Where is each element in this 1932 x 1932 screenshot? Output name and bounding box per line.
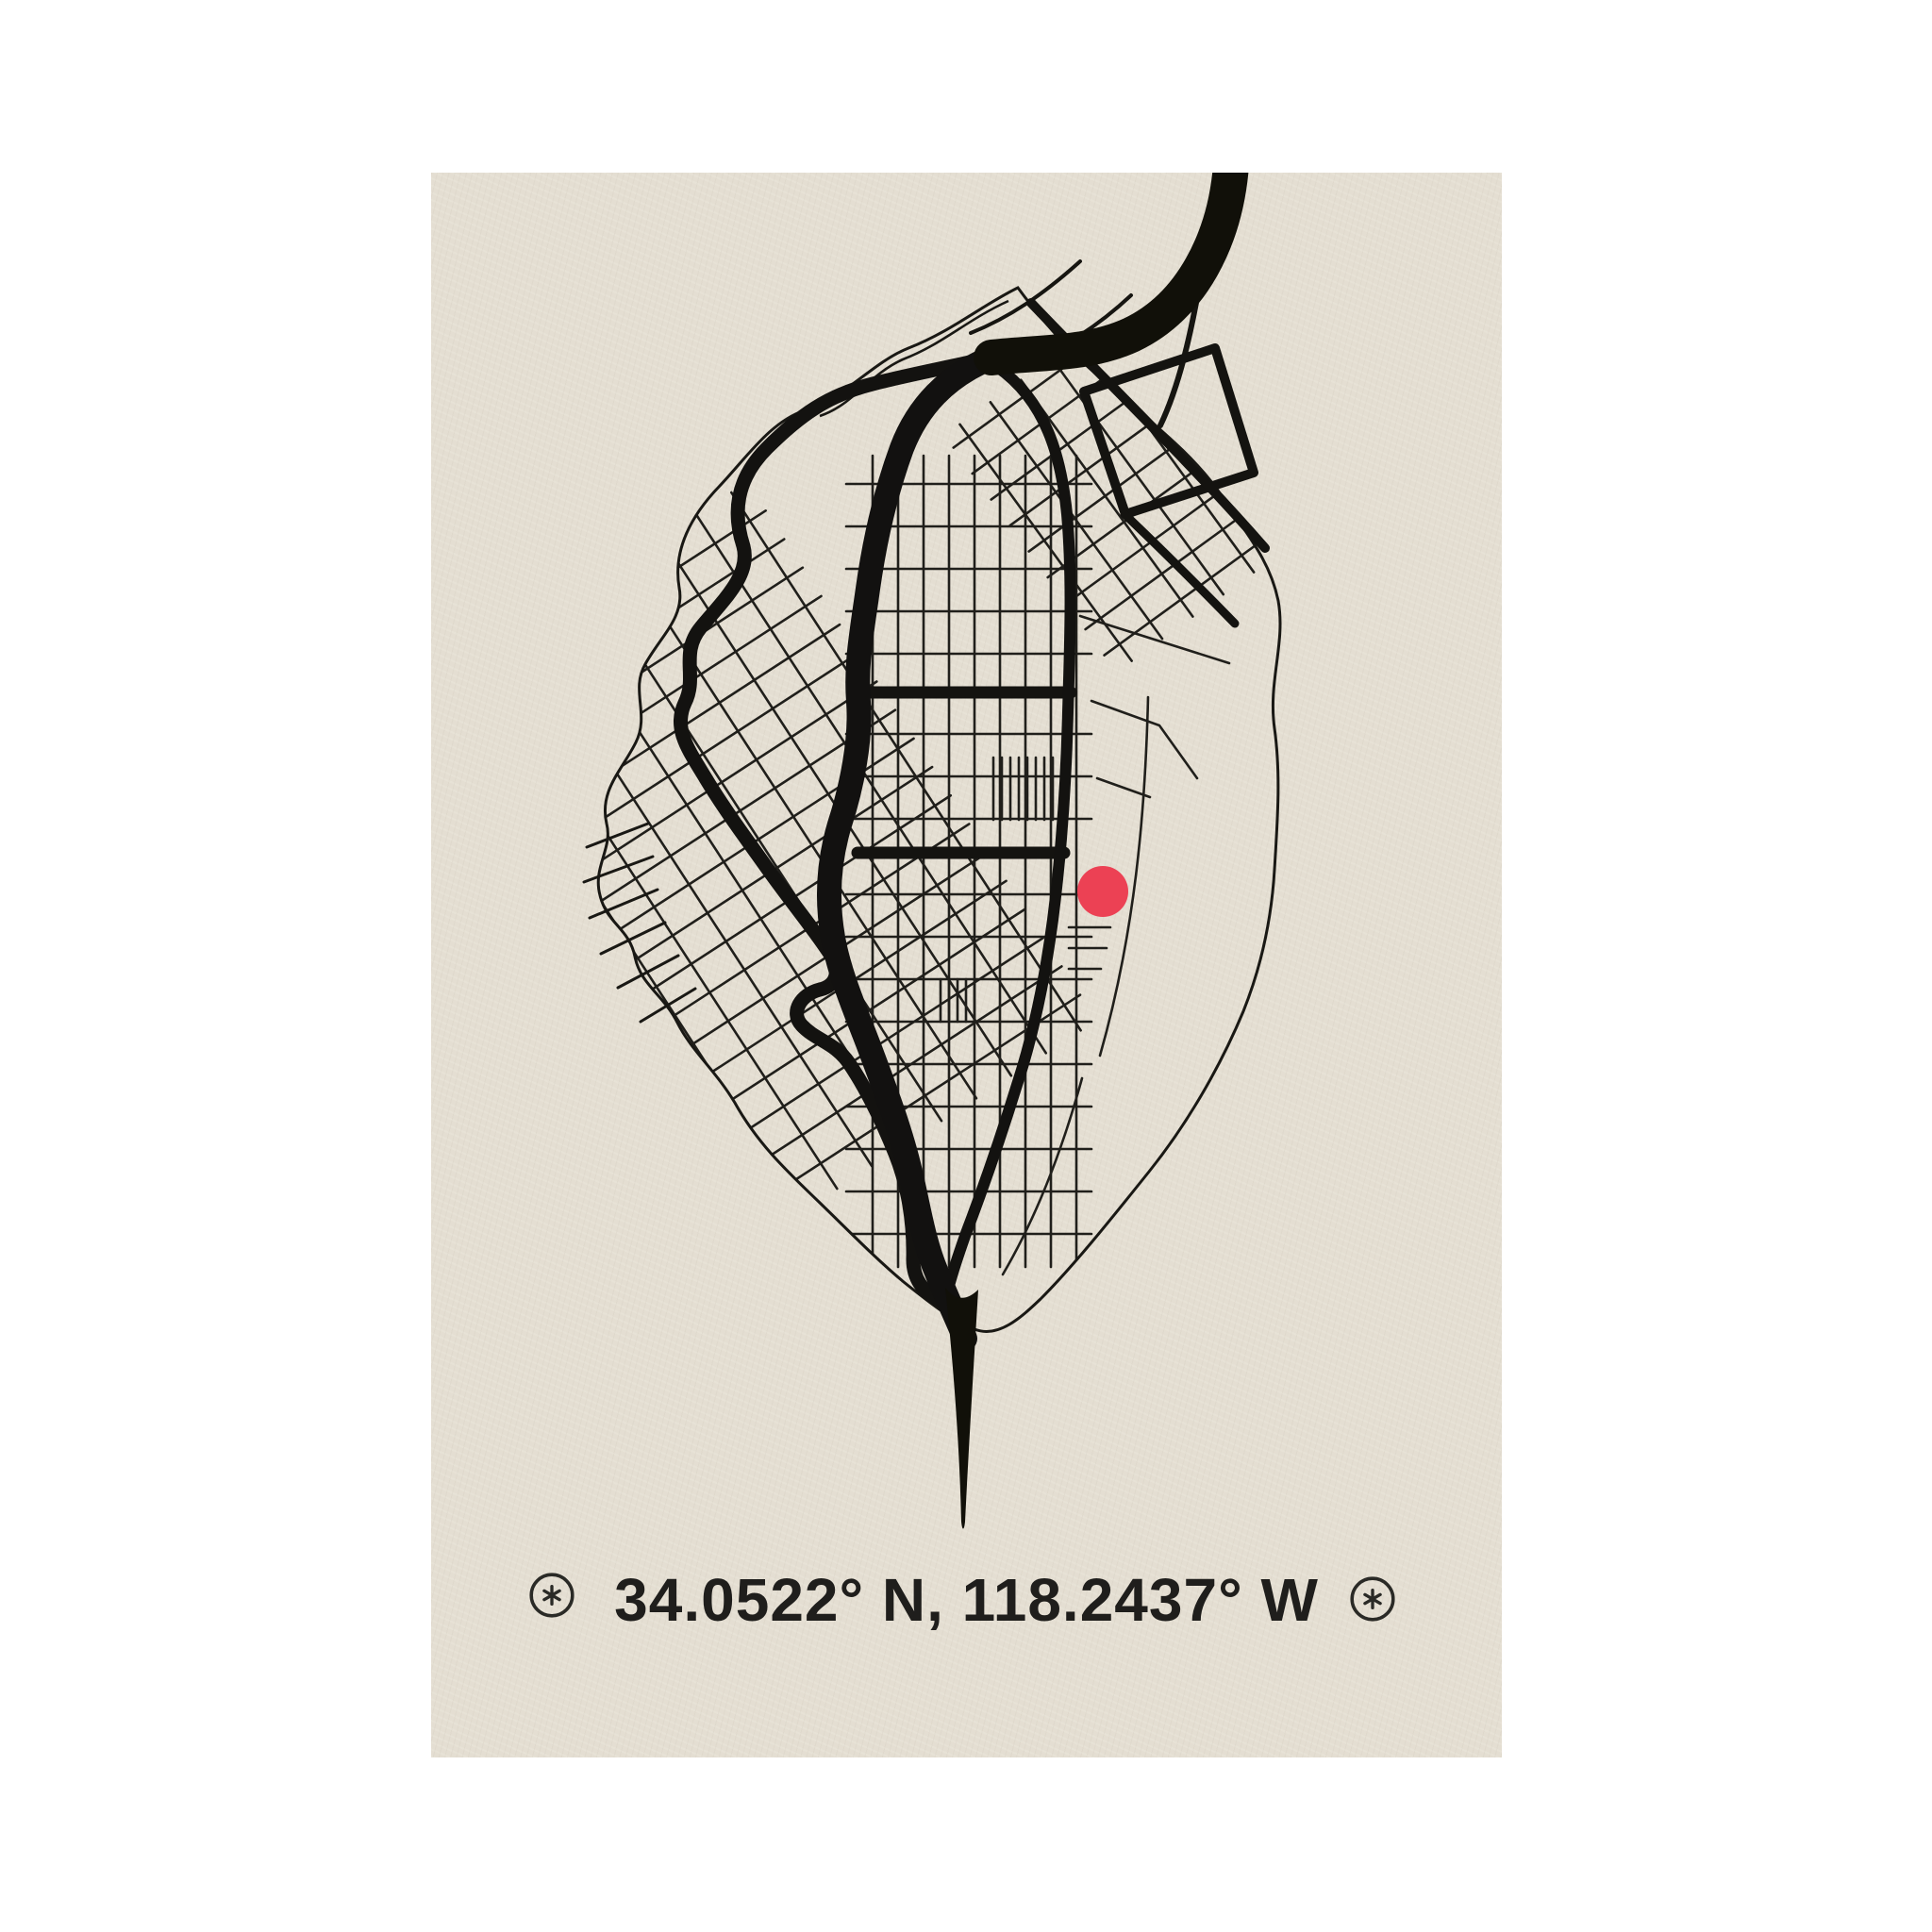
caption-row: 34.0522° N, 118.2437° W [431, 1542, 1502, 1656]
location-marker-dot [1077, 866, 1128, 917]
map-poster: 34.0522° N, 118.2437° W [431, 173, 1502, 1757]
city-street-map-graphic [431, 173, 1502, 1757]
compass-star-icon [1347, 1574, 1398, 1624]
map-boundary-outline [598, 288, 1280, 1331]
page-canvas: 34.0522° N, 118.2437° W [0, 0, 1932, 1932]
main-trunk-road [991, 173, 1231, 358]
coordinates-label: 34.0522° N, 118.2437° W [431, 1565, 1502, 1635]
tapering-road-tail [945, 1288, 978, 1529]
right-side-streets [1003, 616, 1229, 1274]
boundary-stub-ticks [584, 824, 695, 1022]
